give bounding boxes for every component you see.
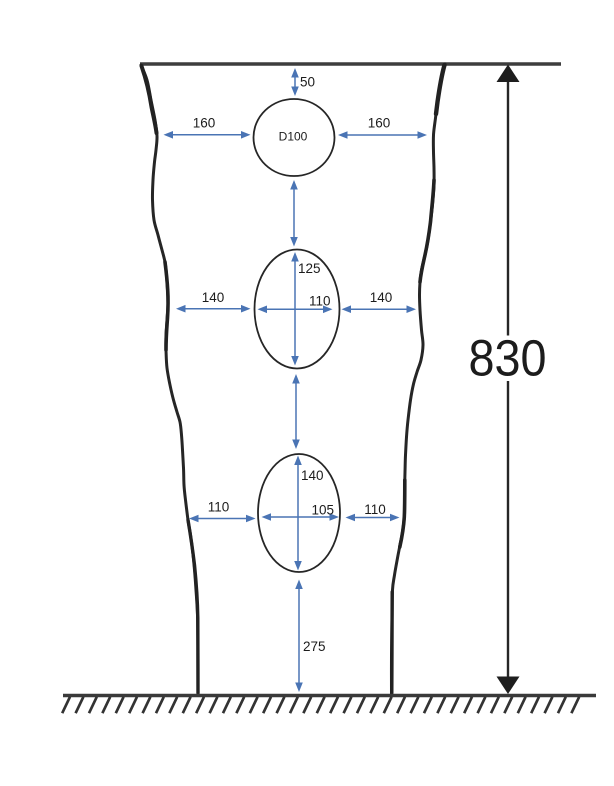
svg-text:140: 140 [370, 290, 393, 305]
svg-text:50: 50 [300, 75, 315, 90]
svg-text:140: 140 [301, 468, 324, 483]
svg-text:160: 160 [193, 116, 216, 131]
svg-text:160: 160 [368, 116, 391, 131]
svg-text:140: 140 [202, 290, 225, 305]
svg-text:830: 830 [469, 330, 547, 387]
svg-text:110: 110 [364, 502, 386, 517]
svg-text:110: 110 [208, 500, 230, 515]
svg-text:105: 105 [312, 503, 335, 518]
svg-text:110: 110 [309, 294, 331, 309]
svg-text:125: 125 [298, 261, 321, 276]
svg-text:275: 275 [303, 639, 326, 654]
svg-text:D100: D100 [279, 130, 308, 144]
